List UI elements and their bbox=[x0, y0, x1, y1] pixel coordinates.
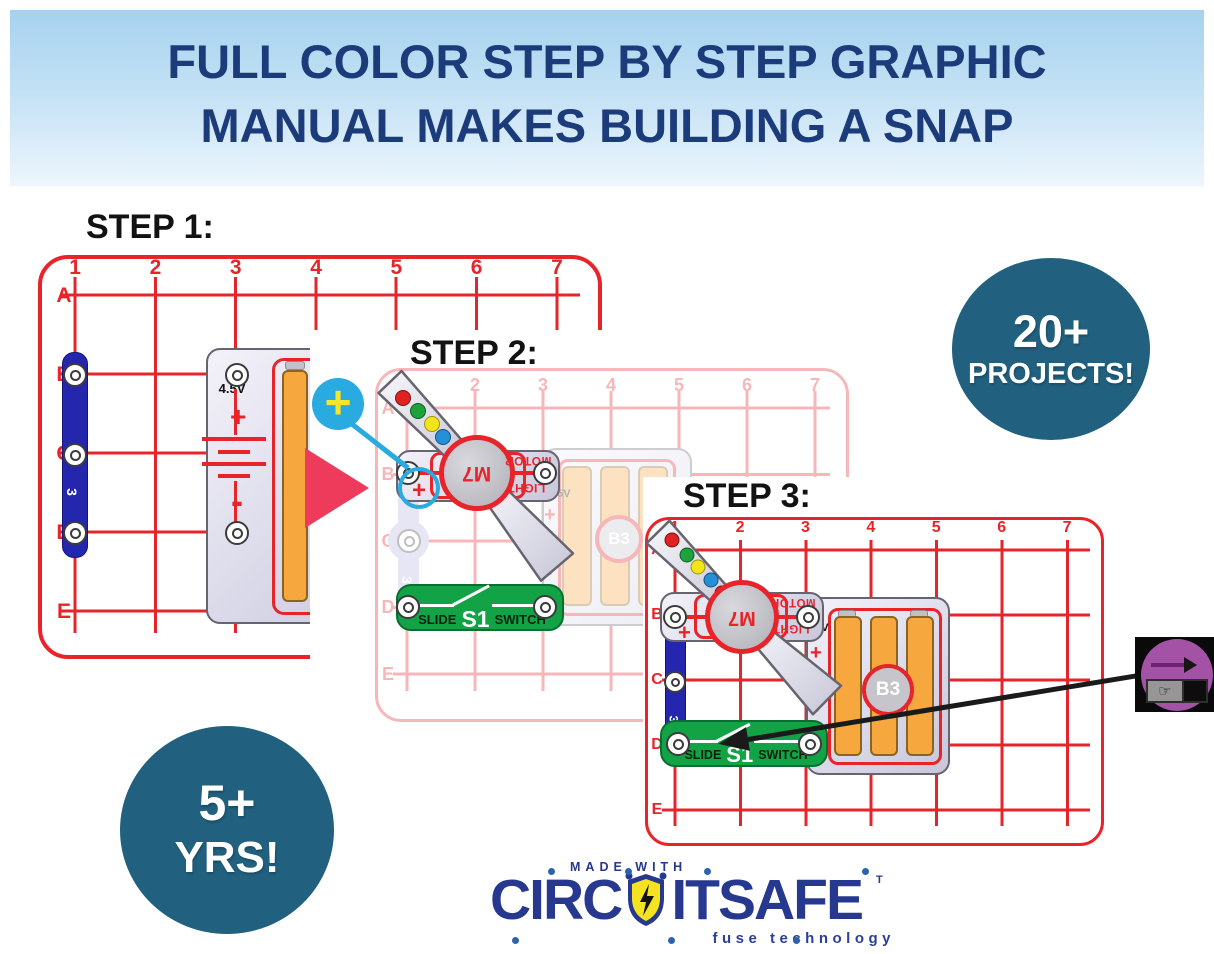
projects-label: PROJECTS! bbox=[968, 357, 1134, 392]
brand-logo: CIRC ITSAFE bbox=[490, 872, 862, 929]
age-badge: 5+ YRS! bbox=[120, 726, 334, 934]
age-value: 5+ bbox=[198, 775, 255, 833]
age-label: YRS! bbox=[174, 832, 279, 885]
projects-badge: 20+ PROJECTS! bbox=[952, 258, 1150, 440]
brand-left: CIRC bbox=[490, 872, 621, 929]
product-graphic: FULL COLOR STEP BY STEP GRAPHIC MANUAL M… bbox=[0, 0, 1214, 954]
brand-right: ITSAFE bbox=[671, 872, 862, 929]
logo-dot bbox=[548, 868, 555, 875]
trademark-mark: T bbox=[876, 874, 883, 886]
logo-dot bbox=[668, 937, 675, 944]
logo-dot bbox=[704, 868, 711, 875]
projects-count: 20+ bbox=[1013, 306, 1089, 358]
logo-tagline: fuse technology bbox=[640, 930, 895, 947]
logo-dot bbox=[862, 868, 869, 875]
logo-dot bbox=[625, 868, 632, 875]
shield-lightning-icon bbox=[623, 872, 669, 928]
logo-dot bbox=[793, 937, 800, 944]
logo-dot bbox=[512, 937, 519, 944]
